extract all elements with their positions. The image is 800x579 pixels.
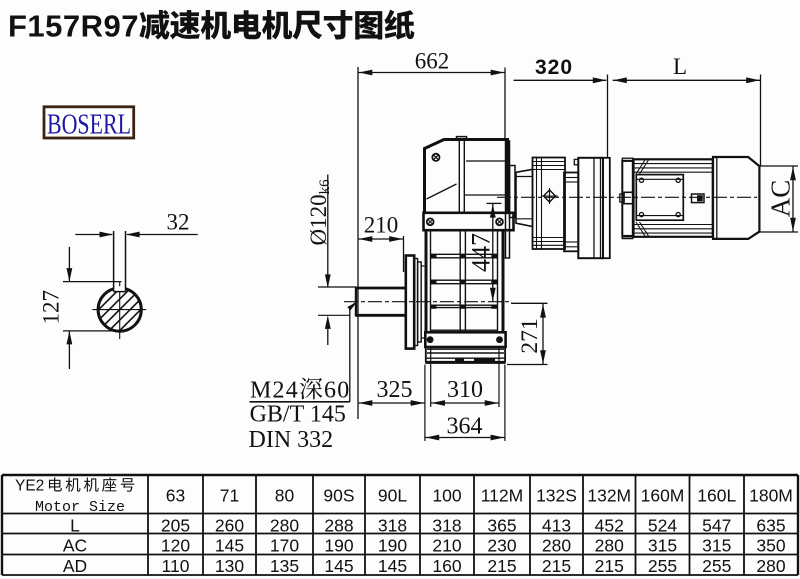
svg-text:L: L [673, 54, 687, 79]
svg-text:215: 215 [595, 556, 624, 576]
svg-text:452: 452 [595, 515, 624, 535]
svg-text:145: 145 [324, 556, 353, 576]
svg-text:AD: AD [63, 556, 87, 576]
svg-text:350: 350 [756, 535, 785, 555]
svg-text:DIN 332: DIN 332 [249, 427, 334, 453]
svg-text:160M: 160M [641, 486, 685, 506]
svg-text:280: 280 [542, 535, 571, 555]
svg-text:132S: 132S [536, 486, 577, 506]
svg-text:190: 190 [378, 535, 407, 555]
svg-text:635: 635 [756, 515, 785, 535]
svg-text:90L: 90L [378, 486, 407, 506]
svg-text:288: 288 [324, 515, 353, 535]
svg-text:145: 145 [215, 535, 244, 555]
svg-text:L: L [70, 515, 80, 535]
svg-text:60: 60 [324, 378, 350, 404]
svg-text:315: 315 [702, 535, 731, 555]
svg-text:112M: 112M [481, 486, 523, 506]
svg-text:215: 215 [542, 556, 571, 576]
svg-text:255: 255 [648, 556, 677, 576]
svg-text:127: 127 [39, 290, 64, 325]
svg-text:GB/T 145: GB/T 145 [250, 402, 346, 428]
svg-text:210: 210 [364, 213, 399, 238]
svg-text:145: 145 [378, 556, 407, 576]
svg-text:325: 325 [377, 377, 413, 403]
svg-text:170: 170 [270, 535, 299, 555]
svg-text:365: 365 [487, 515, 516, 535]
svg-text:160: 160 [432, 556, 461, 576]
svg-text:662: 662 [415, 49, 450, 74]
svg-text:215: 215 [487, 556, 516, 576]
svg-text:100: 100 [432, 486, 461, 506]
svg-text:130: 130 [215, 556, 244, 576]
svg-text:547: 547 [702, 515, 731, 535]
svg-text:364: 364 [447, 414, 483, 440]
svg-text:32: 32 [167, 210, 190, 235]
svg-text:190: 190 [324, 535, 353, 555]
svg-text:120: 120 [161, 535, 190, 555]
svg-text:320: 320 [535, 56, 573, 79]
svg-text:524: 524 [648, 515, 677, 535]
svg-text:260: 260 [215, 515, 244, 535]
svg-text:230: 230 [487, 535, 516, 555]
svg-text:110: 110 [162, 556, 190, 576]
svg-text:280: 280 [595, 535, 624, 555]
svg-text:YE2: YE2 [15, 478, 44, 495]
svg-text:F157R97: F157R97 [8, 9, 139, 44]
svg-text:132M: 132M [587, 486, 631, 506]
svg-text:315: 315 [648, 535, 677, 555]
svg-text:447: 447 [467, 233, 496, 272]
svg-text:210: 210 [432, 535, 461, 555]
svg-text:318: 318 [378, 515, 407, 535]
svg-text:318: 318 [432, 515, 461, 535]
svg-text:280: 280 [270, 515, 299, 535]
svg-text:255: 255 [702, 556, 731, 576]
svg-text:135: 135 [270, 556, 299, 576]
svg-text:AC: AC [766, 180, 796, 218]
svg-text:90S: 90S [323, 486, 354, 506]
svg-text:71: 71 [220, 486, 239, 506]
svg-text:310: 310 [447, 377, 483, 403]
svg-text:Motor Size: Motor Size [35, 499, 125, 516]
svg-text:413: 413 [542, 515, 571, 535]
svg-text:280: 280 [756, 556, 785, 576]
svg-text:205: 205 [161, 515, 190, 535]
svg-text:80: 80 [275, 486, 295, 506]
svg-text:180M: 180M [749, 486, 793, 506]
svg-text:M24: M24 [250, 378, 299, 404]
svg-text:160L: 160L [697, 486, 736, 506]
svg-text:271: 271 [517, 318, 543, 353]
svg-text:AC: AC [63, 535, 87, 555]
svg-text:63: 63 [166, 486, 185, 506]
svg-text:BOSERL: BOSERL [47, 110, 131, 141]
